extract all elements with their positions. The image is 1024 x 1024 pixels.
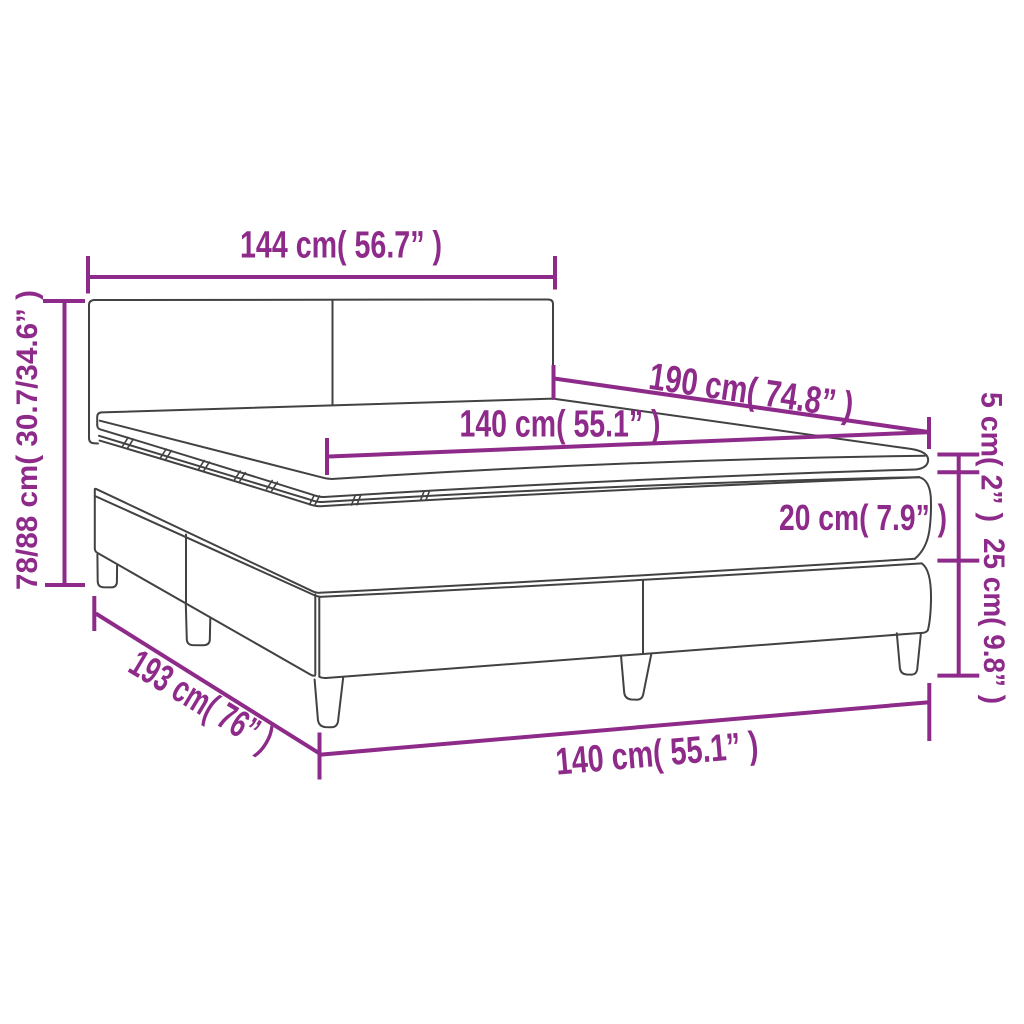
svg-text:144 cm( 56.7” ): 144 cm( 56.7” )	[240, 225, 442, 267]
svg-text:20 cm( 7.9” ): 20 cm( 7.9” )	[779, 497, 947, 538]
svg-text:25 cm( 9.8” ): 25 cm( 9.8” )	[977, 538, 1010, 704]
svg-text:78/88 cm( 30.7/34.6” ): 78/88 cm( 30.7/34.6” )	[11, 290, 44, 590]
svg-text:5 cm( 2” ): 5 cm( 2” )	[975, 392, 1008, 522]
svg-text:193 cm( 76” ): 193 cm( 76” )	[122, 643, 281, 761]
svg-text:140 cm( 55.1” ): 140 cm( 55.1” )	[460, 404, 661, 446]
